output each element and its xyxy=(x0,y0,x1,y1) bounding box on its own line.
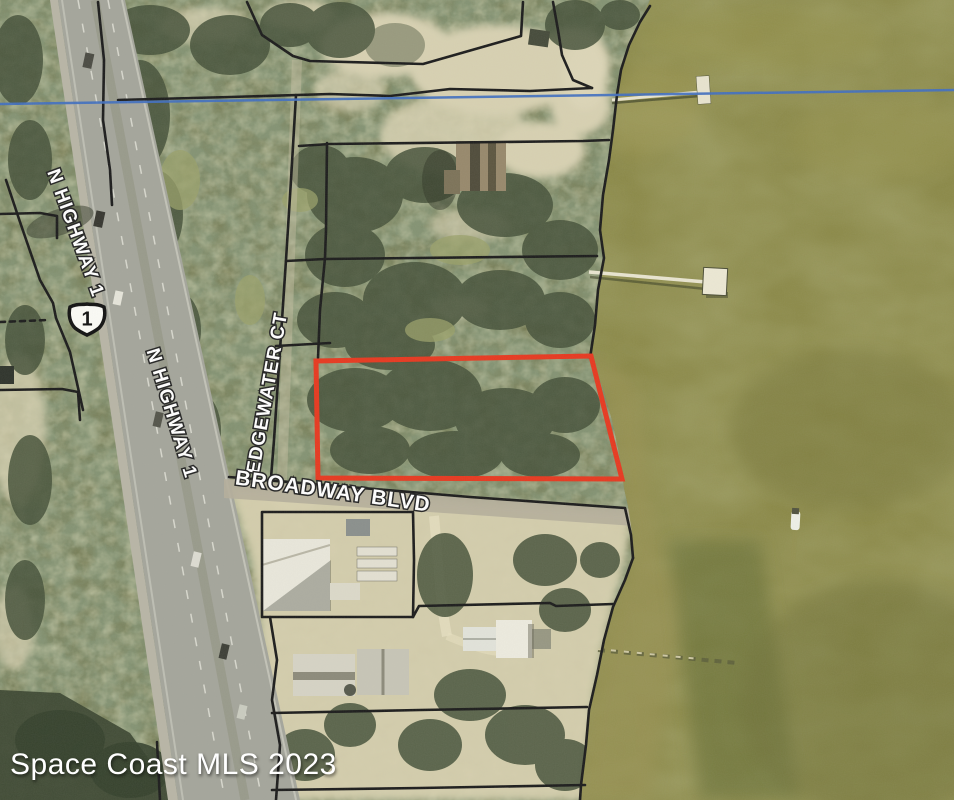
route-shield-number: 1 xyxy=(81,309,92,331)
trailer xyxy=(357,547,397,556)
house-roof xyxy=(456,141,506,191)
water-layer xyxy=(560,0,954,800)
dock-platform xyxy=(702,267,727,295)
small-house xyxy=(496,620,532,658)
map-canvas: 1 N HIGHWAY 1 N HIGHWAY 1 EDGEWATER CT B… xyxy=(0,0,954,800)
mls-watermark: Space Coast MLS 2023 xyxy=(10,748,337,782)
trailer xyxy=(357,559,397,568)
aerial-parcel-map: 1 N HIGHWAY 1 N HIGHWAY 1 EDGEWATER CT B… xyxy=(0,0,954,800)
trailer xyxy=(357,571,397,581)
